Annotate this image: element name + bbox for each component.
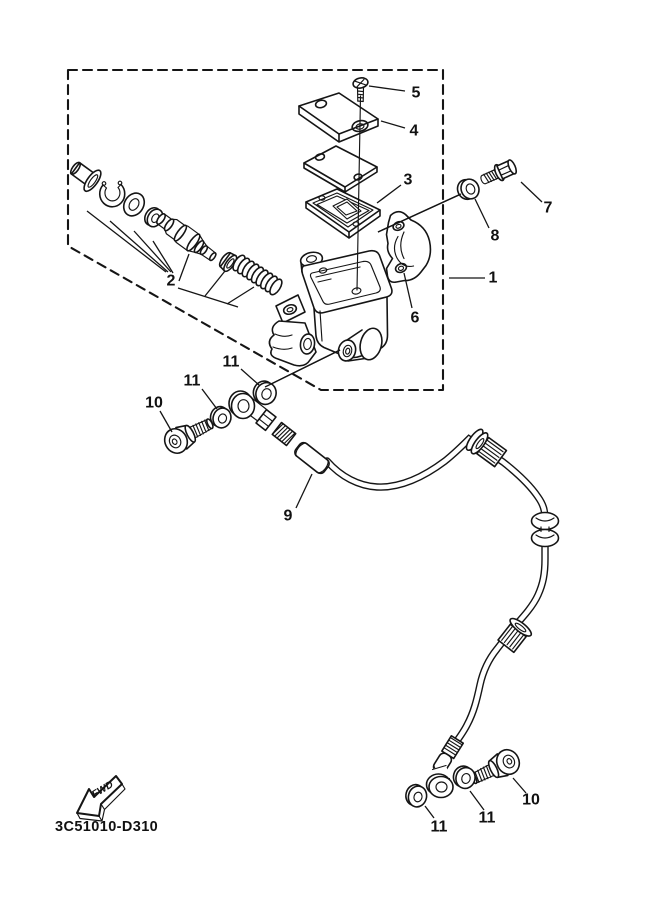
leader-line-part-11 [202, 389, 217, 409]
clamp-bolt [478, 158, 518, 188]
copper-washer-bottom-right [451, 764, 477, 791]
leader-line-part-10 [160, 411, 172, 432]
leader-line-part-5 [369, 86, 405, 91]
clamp-washer [455, 176, 482, 202]
leader-line-part-11 [425, 806, 434, 818]
hose-banjo-bottom [427, 765, 454, 798]
part-label-2-7: 2 [167, 273, 176, 290]
part-label-10-10: 10 [145, 395, 163, 412]
assembly-line-7 [205, 271, 225, 296]
piston-spring [231, 253, 285, 296]
assembly-line-6 [179, 254, 189, 281]
part-label-3-2: 3 [404, 172, 413, 189]
parts-diagram-page: 543781621111109111110 FWD 3C51010-D310 [0, 0, 661, 913]
hose-sleeve-top [293, 441, 331, 476]
exploded-parts-diagram: 543781621111109111110 FWD 3C51010-D310 [0, 0, 661, 913]
leader-line-part-11 [241, 369, 259, 385]
union-bolt-top [161, 412, 218, 458]
part-label-11-13: 11 [479, 810, 496, 827]
hose-grommet-double [532, 513, 559, 547]
leader-line-part-8 [475, 199, 489, 228]
reservoir-plate [304, 146, 377, 192]
part-label-5-0: 5 [412, 85, 421, 102]
leader-line-part-11 [470, 791, 484, 810]
master-cylinder-body [269, 250, 392, 365]
brake-hose [229, 391, 559, 798]
assembly-line-3 [110, 221, 168, 272]
leader-line-part-4 [381, 121, 405, 128]
assembly-line-8 [227, 287, 254, 304]
hose-crimp-ribs [272, 423, 295, 446]
leader-line-part-7 [521, 182, 542, 202]
part-label-10-14: 10 [522, 792, 540, 809]
copper-washer-bottom-left [404, 783, 429, 809]
part-label-11-8: 11 [223, 354, 240, 371]
fwd-arrow: FWD [77, 776, 125, 821]
circlip [99, 181, 125, 207]
part-label-11-12: 11 [431, 819, 448, 836]
reservoir-diaphragm [306, 189, 380, 238]
diagram-code: 3C51010-D310 [55, 819, 158, 835]
part-label-11-9: 11 [184, 373, 201, 390]
assembly-line-9 [178, 288, 238, 307]
leader-line-part-9 [296, 474, 312, 508]
part-label-1-5: 1 [489, 270, 498, 287]
part-label-9-11: 9 [284, 508, 293, 525]
part-label-6-6: 6 [411, 310, 420, 327]
union-bolt-bottom [466, 746, 523, 791]
leader-line-part-3 [377, 185, 401, 203]
handlebar-clamp [387, 212, 431, 283]
part-label-7-3: 7 [544, 200, 553, 217]
part-label-8-4: 8 [491, 228, 500, 245]
reservoir-cap [299, 93, 378, 142]
part-label-4-1: 4 [410, 123, 419, 140]
